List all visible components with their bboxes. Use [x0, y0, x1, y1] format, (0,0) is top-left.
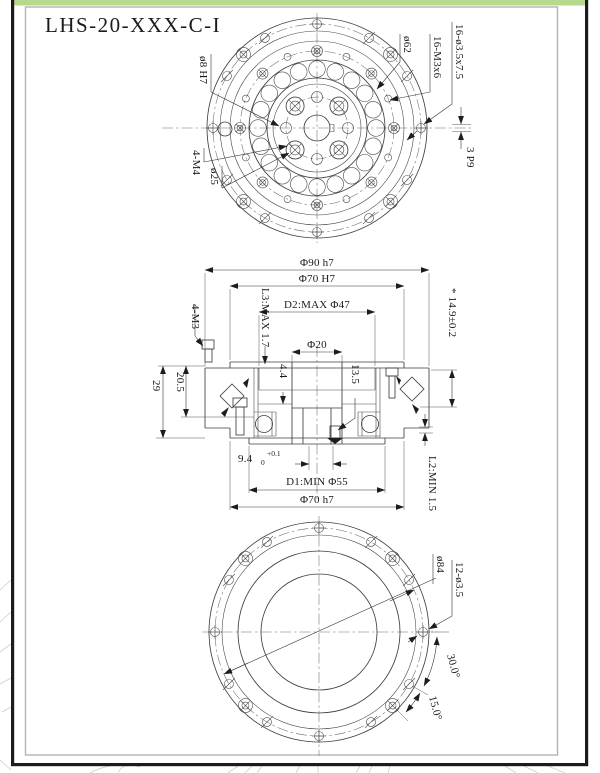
label-bc84: ø84 — [434, 556, 446, 573]
dim-bore20: Φ20 — [307, 339, 327, 351]
top-view-hole-patterns — [206, 17, 428, 239]
background-sketch-lines — [0, 580, 565, 773]
label-keyway: 3 P9 — [464, 147, 476, 168]
drawing-page: LHS-20-XXX-C-I ø8 H7 4 — [0, 0, 600, 773]
dim-d2max: D2:MAX Φ47 — [284, 299, 350, 311]
dim-94-sub: 0 — [261, 458, 265, 467]
label-bc25: ø25 — [208, 168, 220, 185]
dim-94: 9.4 — [238, 453, 253, 465]
dim-height-tol: * 14.9±0.2 — [446, 288, 458, 337]
right-frame-bar — [585, 0, 588, 766]
top-view: ø8 H7 4-M4 ø25 ø62 16-M3x6 16-ø3.5x7.5 3… — [162, 13, 476, 243]
label-angle-15: 15.0° — [426, 695, 444, 722]
dim-29: 29 — [150, 380, 162, 392]
label-16-m3x6: 16-M3x6 — [431, 36, 443, 79]
dim-d1min: D1:MIN Φ55 — [286, 476, 348, 488]
drawing-canvas: LHS-20-XXX-C-I ø8 H7 4 — [0, 0, 600, 773]
dim-94-sup: +0.1 — [267, 449, 281, 458]
dim-44: 4.4 — [277, 364, 289, 379]
drawing-title: LHS-20-XXX-C-I — [45, 13, 221, 37]
bottom-view: ø84 12-ø3.5 30.0° 15.0° — [202, 516, 465, 756]
section-view: Φ90 h7 Φ70 H7 D2:MAX Φ47 Φ20 L3:MAX 1.7 … — [150, 257, 458, 511]
label-4-m4: 4-M4 — [190, 150, 202, 176]
label-dowel-hole: ø8 H7 — [197, 56, 209, 84]
label-angle-30: 30.0° — [444, 653, 462, 680]
dim-205: 20.5 — [174, 372, 186, 392]
dim-od90: Φ90 h7 — [300, 257, 334, 269]
dim-bore70: Φ70 H7 — [299, 273, 336, 285]
top-green-bar — [14, 0, 586, 6]
dim-od70: Φ70 h7 — [300, 494, 334, 506]
bottom-frame-bar — [11, 763, 588, 766]
label-16-cbore: 16-ø3.5x7.5 — [453, 24, 465, 80]
label-bc62: ø62 — [401, 36, 413, 53]
inner-border — [26, 7, 558, 755]
left-frame-bar — [11, 0, 14, 766]
label-12-holes: 12-ø3.5 — [453, 562, 465, 598]
dim-135: 13.5 — [349, 364, 361, 384]
dim-l3max: L3:MAX 1.7 — [259, 288, 271, 348]
dim-l2min: L2:MIN 1.5 — [426, 456, 438, 511]
